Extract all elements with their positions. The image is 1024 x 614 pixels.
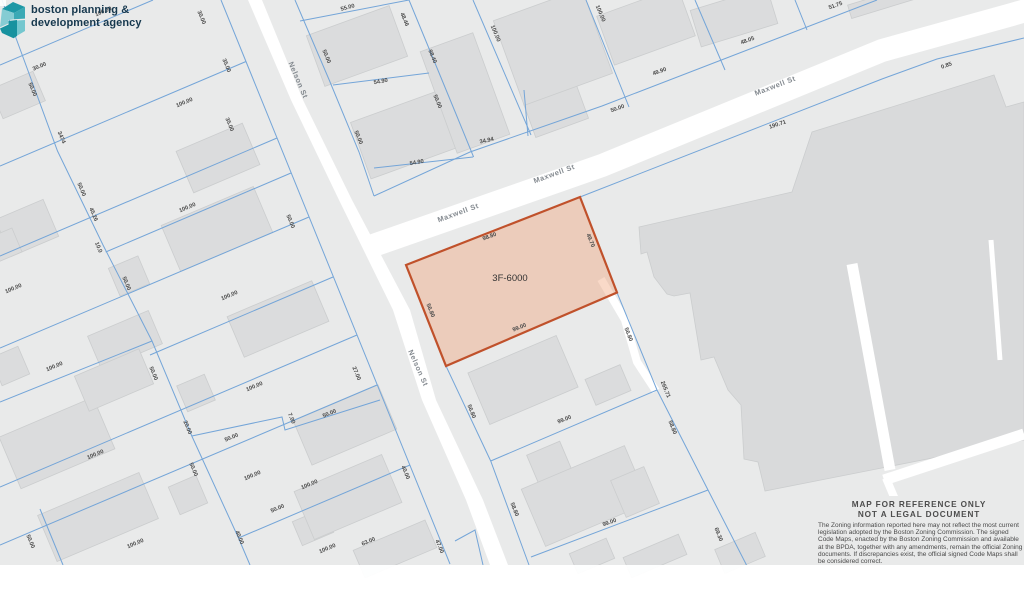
svg-text:3F-6000: 3F-6000 [492, 273, 527, 284]
